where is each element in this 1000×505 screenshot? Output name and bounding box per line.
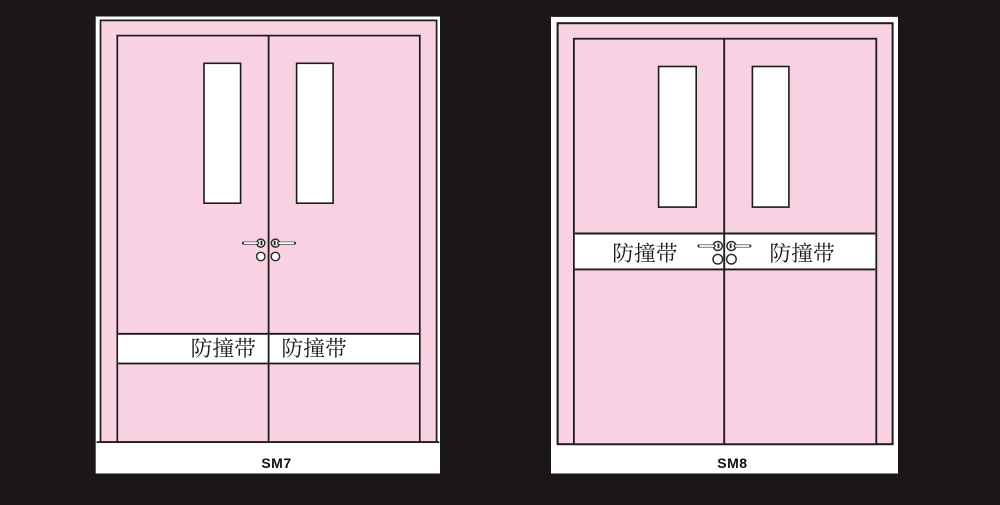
svg-text:SM8: SM8	[717, 455, 747, 471]
svg-text:SM7: SM7	[261, 455, 291, 471]
